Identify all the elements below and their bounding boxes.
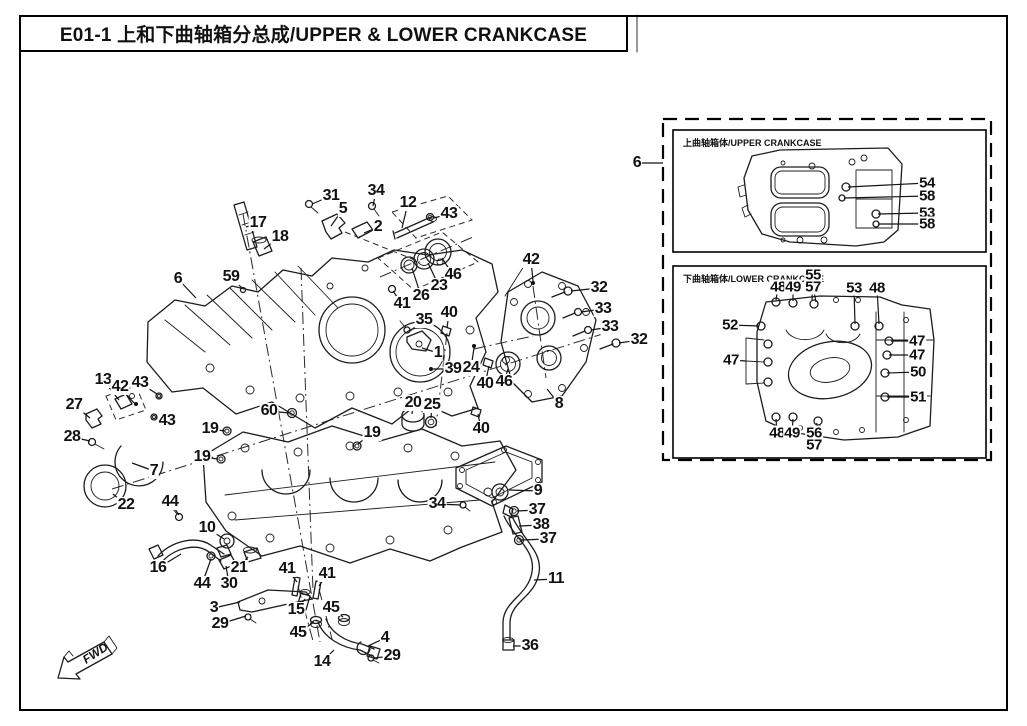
- callout-9: 9: [533, 483, 543, 499]
- callout-6: 6: [173, 271, 183, 287]
- callout-47: 47: [908, 348, 926, 363]
- callout-34: 34: [428, 496, 447, 512]
- callout-58: 58: [918, 189, 936, 204]
- callout-41: 41: [393, 296, 412, 312]
- callout-58: 58: [918, 217, 936, 232]
- callout-20: 20: [404, 395, 423, 411]
- callout-49: 49: [784, 280, 802, 295]
- callout-33: 33: [601, 319, 620, 335]
- callout-59: 59: [222, 269, 241, 285]
- callout-41: 41: [318, 566, 337, 582]
- callout-29: 29: [211, 616, 230, 632]
- callout-17: 17: [249, 215, 268, 231]
- callout-18: 18: [271, 229, 290, 245]
- callout-37: 37: [539, 531, 558, 547]
- parts-catalog-page: FWD E01-1 上和下曲轴箱分总成/UPPER & LOWER CRANKC…: [0, 0, 1027, 726]
- callout-40: 40: [472, 421, 491, 437]
- callout-36: 36: [521, 638, 540, 654]
- callout-45: 45: [289, 625, 308, 641]
- callout-19: 19: [363, 425, 382, 441]
- callout-11: 11: [547, 571, 565, 587]
- upper-inset-label: 上曲轴箱体/UPPER CRANKCASE: [683, 136, 822, 149]
- title-bar: E01-1 上和下曲轴箱分总成/UPPER & LOWER CRANKCASE: [19, 15, 628, 52]
- callout-43: 43: [158, 413, 177, 429]
- callout-32: 32: [590, 280, 609, 296]
- callout-33: 33: [594, 301, 613, 317]
- callout-57: 57: [804, 280, 822, 295]
- callout-42: 42: [111, 379, 130, 395]
- callout-34: 34: [367, 183, 386, 199]
- callout-8: 8: [554, 396, 564, 412]
- callout-57: 57: [805, 438, 823, 453]
- callout-19: 19: [201, 421, 220, 437]
- callout-50: 50: [909, 365, 927, 380]
- callout-14: 14: [313, 654, 332, 670]
- callout-19: 19: [193, 449, 212, 465]
- callout-40: 40: [440, 305, 459, 321]
- callout-6: 6: [632, 155, 642, 171]
- callout-49: 49: [783, 426, 801, 441]
- callout-43: 43: [131, 375, 150, 391]
- callout-44: 44: [161, 494, 180, 510]
- callout-26: 26: [412, 288, 431, 304]
- callout-29: 29: [383, 648, 402, 664]
- callout-16: 16: [149, 560, 168, 576]
- callout-42: 42: [522, 252, 541, 268]
- callout-22: 22: [117, 497, 136, 513]
- callout-45: 45: [322, 600, 341, 616]
- callout-1: 1: [433, 345, 443, 361]
- callout-28: 28: [63, 429, 82, 445]
- callout-12: 12: [399, 195, 418, 211]
- callout-27: 27: [65, 397, 84, 413]
- callout-35: 35: [415, 312, 434, 328]
- callout-3: 3: [209, 600, 219, 616]
- callout-13: 13: [94, 372, 113, 388]
- callout-44: 44: [193, 576, 212, 592]
- callout-21: 21: [230, 560, 249, 576]
- callout-47: 47: [722, 353, 740, 368]
- callout-32: 32: [630, 332, 649, 348]
- callout-2: 2: [373, 219, 383, 235]
- callout-15: 15: [287, 602, 306, 618]
- callout-51: 51: [909, 390, 927, 405]
- callout-40: 40: [476, 376, 495, 392]
- callout-4: 4: [380, 630, 390, 646]
- callout-48: 48: [868, 281, 886, 296]
- page-border: [19, 15, 1008, 711]
- callout-5: 5: [338, 201, 348, 217]
- callout-41: 41: [278, 561, 297, 577]
- callout-39: 39: [444, 361, 463, 377]
- lower-inset-label: 下曲轴箱体/LOWER CRANKCASE: [683, 272, 824, 285]
- callout-25: 25: [423, 397, 442, 413]
- callout-30: 30: [220, 576, 239, 592]
- callout-7: 7: [149, 463, 159, 479]
- callout-43: 43: [440, 206, 459, 222]
- callout-23: 23: [430, 278, 449, 294]
- callout-60: 60: [260, 403, 279, 419]
- callout-10: 10: [198, 520, 217, 536]
- page-title: E01-1 上和下曲轴箱分总成/UPPER & LOWER CRANKCASE: [60, 20, 587, 47]
- callout-46: 46: [495, 374, 514, 390]
- callout-53: 53: [845, 281, 863, 296]
- callout-52: 52: [721, 318, 739, 333]
- callout-24: 24: [462, 360, 481, 376]
